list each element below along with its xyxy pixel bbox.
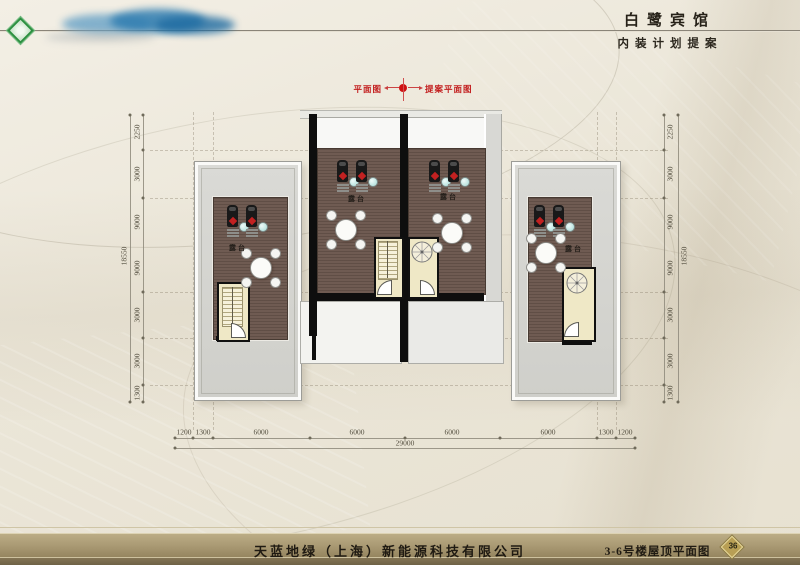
- dim-tick: [129, 401, 132, 404]
- side-table: [258, 222, 268, 232]
- dimension-line: [175, 448, 635, 449]
- chair: [432, 242, 443, 253]
- dim-tick: [663, 291, 666, 294]
- terrace-label: 露台: [565, 244, 583, 254]
- chair: [355, 239, 366, 250]
- terrace-label: 露台: [440, 192, 458, 202]
- dim-tick: [142, 197, 145, 200]
- arrow-right-icon: [419, 86, 423, 90]
- dim-label: 3000: [133, 354, 142, 369]
- lounger-mat: [227, 229, 239, 237]
- dim-tick: [663, 197, 666, 200]
- dim-label: 3000: [133, 308, 142, 323]
- dim-label: 3000: [133, 167, 142, 182]
- chair: [526, 262, 537, 273]
- dim-tick: [129, 114, 132, 117]
- table-top: [335, 219, 357, 241]
- dim-tick: [677, 401, 680, 404]
- terrace-label: 露台: [348, 194, 366, 204]
- lounger: [356, 160, 376, 193]
- table-top: [535, 242, 557, 264]
- footer-rule: [0, 527, 800, 528]
- page-subtitle: 内装计划提案: [545, 35, 795, 51]
- chair: [326, 210, 337, 221]
- dim-label: 3000: [666, 167, 675, 182]
- dim-label: 1300: [666, 386, 675, 401]
- dim-label: 3000: [666, 308, 675, 323]
- dim-label: 1300: [599, 428, 614, 437]
- plan-marker-left-label: 平面图: [322, 83, 382, 95]
- dim-label: 6000: [254, 428, 269, 437]
- party-wall: [309, 114, 317, 336]
- dim-label: 29000: [396, 439, 415, 448]
- lower-roof-right: [408, 301, 504, 364]
- dim-label: 1300: [133, 386, 142, 401]
- lounger-mat: [337, 184, 349, 192]
- dim-label: 2250: [133, 125, 142, 140]
- dim-label: 1200: [618, 428, 633, 437]
- stair-treads: [378, 241, 398, 280]
- patio-table-set: [524, 231, 568, 275]
- lounger-mat: [429, 184, 441, 192]
- plan-marker-right-label: 提案平面图: [425, 83, 473, 95]
- dim-label: 6000: [445, 428, 460, 437]
- terrace-label: 露台: [229, 243, 247, 253]
- chair: [432, 213, 443, 224]
- dim-tick: [634, 447, 637, 450]
- patio-table-set: [324, 208, 368, 252]
- side-table: [460, 177, 470, 187]
- lounger: [448, 160, 468, 193]
- dim-tick: [596, 437, 599, 440]
- stair-rail: [232, 287, 233, 325]
- presentation-page: 白鹭宾馆 内装计划提案 平面图 提案平面图: [0, 0, 800, 565]
- chair: [461, 213, 472, 224]
- page-title: 白鹭宾馆: [545, 9, 795, 30]
- dim-label: 18550: [680, 247, 689, 266]
- dim-tick: [142, 149, 145, 152]
- table-top: [250, 257, 272, 279]
- pergola-band-left: [317, 117, 400, 150]
- party-wall-stub: [312, 336, 316, 360]
- dim-label: 9000: [133, 261, 142, 276]
- dim-tick: [615, 437, 618, 440]
- dim-label: 1300: [196, 428, 211, 437]
- dim-tick: [212, 437, 215, 440]
- dim-tick: [634, 437, 637, 440]
- side-table: [368, 177, 378, 187]
- dim-tick: [499, 437, 502, 440]
- dim-label: 9000: [133, 215, 142, 230]
- marker-axis-line: [403, 78, 404, 101]
- lounger-mat: [246, 229, 258, 237]
- dim-tick: [142, 291, 145, 294]
- marker-line: [388, 87, 399, 88]
- drawing-title: 3-6号楼屋顶平面图: [595, 543, 720, 559]
- dimension-line: [143, 115, 144, 402]
- dim-tick: [663, 114, 666, 117]
- lounger: [246, 205, 266, 238]
- dim-label: 9000: [666, 215, 675, 230]
- lounger: [337, 160, 357, 193]
- chair: [270, 248, 281, 259]
- dim-tick: [174, 437, 177, 440]
- dim-tick: [142, 384, 145, 387]
- chair: [326, 239, 337, 250]
- chair: [355, 210, 366, 221]
- patio-table-set: [430, 211, 474, 255]
- dim-tick: [309, 437, 312, 440]
- dim-label: 2250: [666, 125, 675, 140]
- chair: [555, 233, 566, 244]
- chair: [241, 277, 252, 288]
- chair: [270, 277, 281, 288]
- dim-tick: [663, 149, 666, 152]
- dim-label: 18550: [120, 247, 129, 266]
- company-name: 天蓝地绿（上海）新能源科技有限公司: [200, 541, 580, 560]
- lounger-mat: [356, 184, 368, 192]
- dim-tick: [192, 437, 195, 440]
- lounger-mat: [448, 184, 460, 192]
- dim-tick: [142, 401, 145, 404]
- dim-tick: [663, 337, 666, 340]
- lounger: [227, 205, 247, 238]
- chair: [461, 242, 472, 253]
- chair: [555, 262, 566, 273]
- mountain-blob: [155, 16, 235, 34]
- stair-rail: [387, 241, 388, 278]
- page-number: 36: [726, 541, 740, 550]
- table-top: [441, 222, 463, 244]
- spiral-stair-icon: [565, 271, 589, 295]
- dim-tick: [142, 114, 145, 117]
- mountain-reflection: [45, 32, 155, 42]
- pergola-band-right: [408, 117, 484, 150]
- dim-tick: [174, 447, 177, 450]
- lounger: [429, 160, 449, 193]
- dim-tick: [663, 401, 666, 404]
- dim-label: 6000: [541, 428, 556, 437]
- dim-label: 3000: [666, 354, 675, 369]
- dim-tick: [142, 337, 145, 340]
- dimension-line: [130, 115, 131, 402]
- marker-line: [408, 87, 419, 88]
- dim-label: 6000: [350, 428, 365, 437]
- chair: [526, 233, 537, 244]
- dim-label: 1200: [177, 428, 192, 437]
- dim-label: 9000: [666, 261, 675, 276]
- dim-tick: [677, 114, 680, 117]
